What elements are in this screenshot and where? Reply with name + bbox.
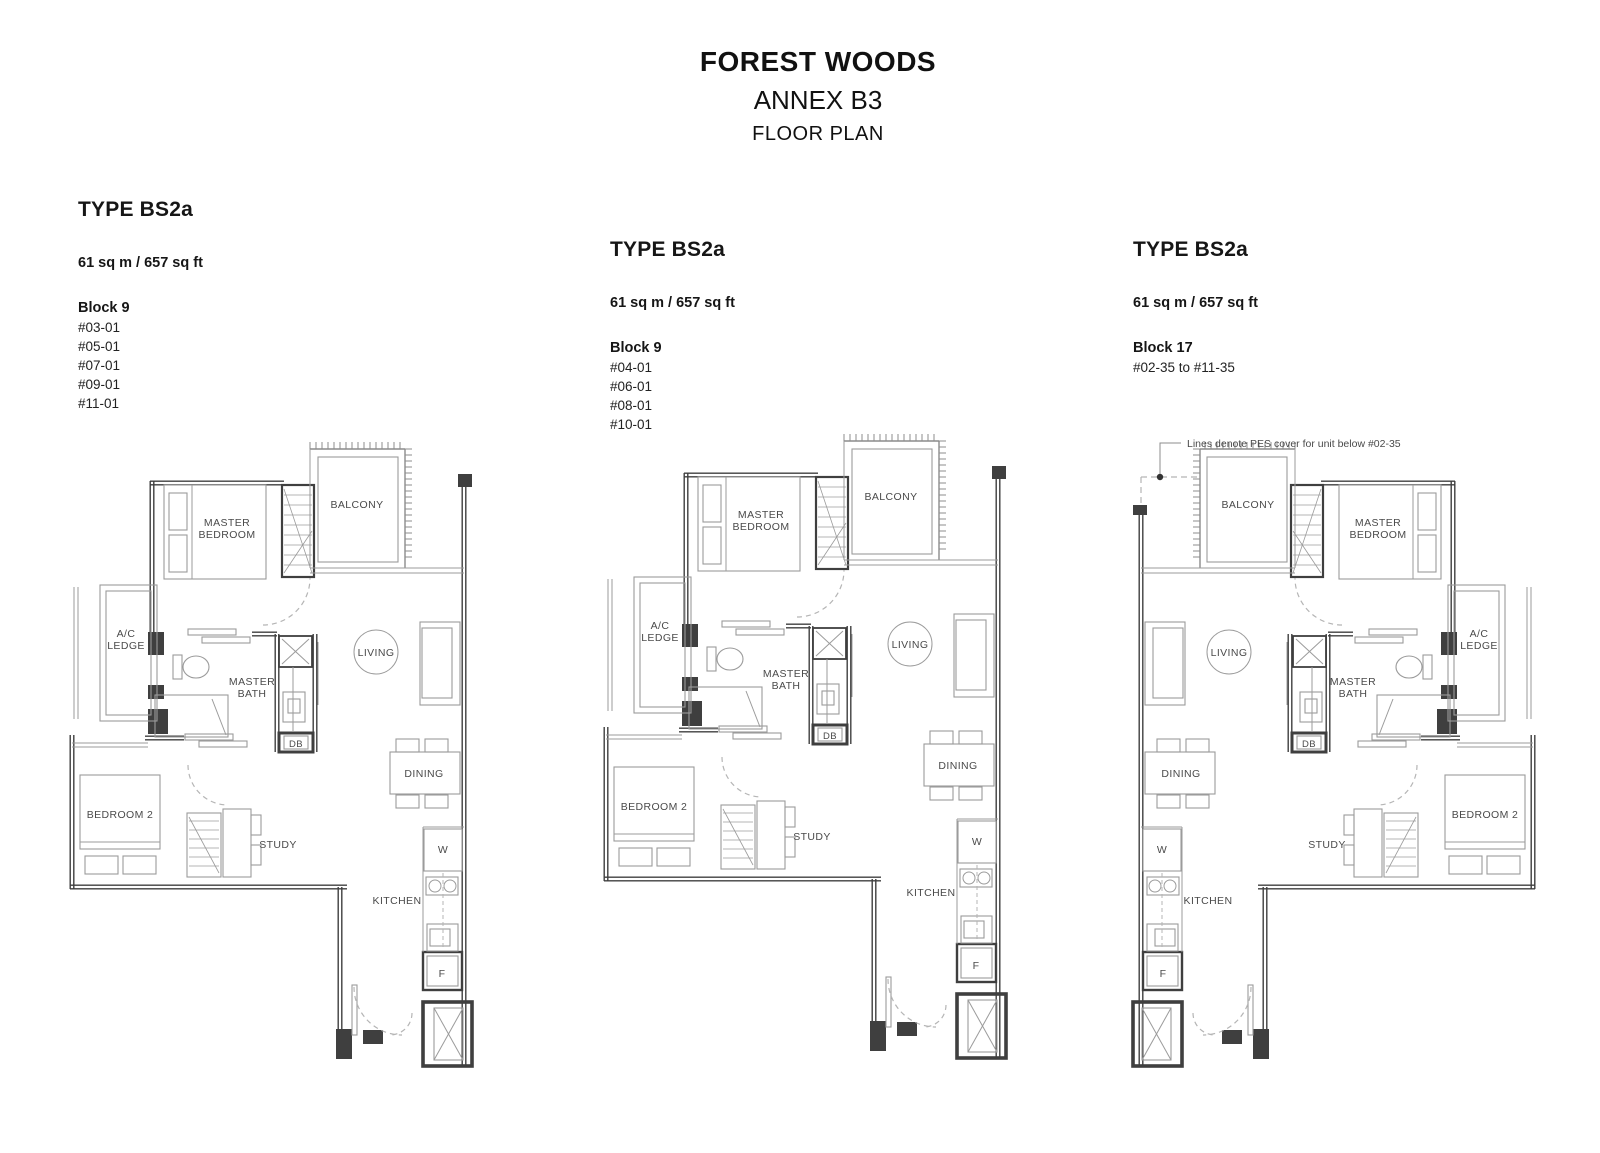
label-master_bath: MASTER <box>763 668 809 680</box>
unit-area: 61 sq m / 657 sq ft <box>610 295 735 311</box>
shaft <box>957 994 1006 1058</box>
unit-block: Block 17 <box>1133 340 1193 356</box>
stack-number: #03-01 <box>78 318 120 337</box>
fixture <box>954 614 994 697</box>
unit-type: TYPE BS2a <box>610 238 725 262</box>
fixture <box>959 787 982 800</box>
fixture <box>733 733 781 739</box>
floor-plan-3: Lines denote PES cover for unit below #0… <box>1085 437 1545 1077</box>
wall-block <box>992 466 1006 479</box>
stack-number: #07-01 <box>78 356 120 375</box>
label-master_bath: MASTER <box>229 676 275 688</box>
fixture <box>964 921 984 938</box>
fixture <box>1358 741 1406 747</box>
unit-type: TYPE BS2a <box>1133 238 1248 262</box>
fixture <box>722 621 770 627</box>
fixture <box>169 493 187 530</box>
fixture <box>123 856 156 874</box>
fixture <box>396 739 419 752</box>
fixture <box>640 583 685 707</box>
fixture <box>1155 929 1175 946</box>
label-db: DB <box>1302 739 1316 750</box>
unit-block: Block 9 <box>610 340 662 356</box>
hatch <box>1293 531 1321 573</box>
label-master_bedroom: BEDROOM <box>732 521 789 533</box>
label-dining: DINING <box>938 760 977 772</box>
fixture <box>202 637 250 643</box>
hatch <box>284 531 312 573</box>
shaft <box>1133 1002 1182 1066</box>
hatch <box>818 523 846 565</box>
wall-block <box>1133 505 1147 515</box>
label-ac_ledge: A/C <box>1470 628 1489 640</box>
unit-info-1: TYPE BS2a 61 sq m / 657 sq ft Block 9 #0… <box>78 198 193 222</box>
label-ac_ledge: LEDGE <box>1460 640 1498 652</box>
unit-stack-list: #02-35 to #11-35 <box>1133 358 1235 377</box>
fixture <box>930 731 953 744</box>
stack-number: #04-01 <box>610 358 652 377</box>
plan-geometry <box>604 434 1006 1059</box>
pes-leader-line <box>1160 443 1181 474</box>
fixture <box>817 684 839 714</box>
fixture <box>1186 795 1209 808</box>
wall-block <box>682 677 698 691</box>
fixture <box>959 731 982 744</box>
label-washer: W <box>438 844 448 856</box>
label-study: STUDY <box>793 831 831 843</box>
toilet-bowl <box>1396 656 1422 678</box>
fixture <box>425 739 448 752</box>
label-master_bath: BATH <box>238 688 267 700</box>
stack-number: #02-35 to #11-35 <box>1133 358 1235 377</box>
fixture <box>430 929 450 946</box>
fixture <box>1157 795 1180 808</box>
fixture <box>703 485 721 522</box>
floor-plan-2: BALCONYLIVINGDININGBEDROOM 2STUDYKITCHEN… <box>594 429 1054 1069</box>
unit-area: 61 sq m / 657 sq ft <box>78 255 203 271</box>
fixture <box>1449 856 1482 874</box>
label-fridge: F <box>439 968 446 980</box>
label-fridge: F <box>1160 968 1167 980</box>
label-master_bath: MASTER <box>1330 676 1376 688</box>
wall-block <box>1222 1030 1242 1044</box>
door-swing <box>1377 765 1417 805</box>
fixture <box>960 869 992 887</box>
stack-number: #06-01 <box>610 377 652 396</box>
fixture <box>169 535 187 572</box>
fixture <box>1369 629 1417 635</box>
label-master_bedroom: MASTER <box>738 509 784 521</box>
fixture <box>619 848 652 866</box>
door-swing <box>924 1005 946 1027</box>
fixture <box>288 699 300 713</box>
fixture <box>1186 739 1209 752</box>
fixture <box>1418 535 1436 572</box>
door-swing <box>1295 578 1342 625</box>
pes-marker-dot <box>1157 474 1163 480</box>
wall-block <box>682 624 698 647</box>
fixture <box>422 628 452 698</box>
unit-info-3: TYPE BS2a 61 sq m / 657 sq ft Block 17 #… <box>1133 238 1248 262</box>
header: FOREST WOODS ANNEX B3 FLOOR PLAN <box>618 46 1018 146</box>
label-bedroom2: BEDROOM 2 <box>621 801 688 813</box>
hob-burner <box>978 872 990 884</box>
hatch <box>1293 489 1321 573</box>
label-dining: DINING <box>404 768 443 780</box>
fixture <box>1355 637 1403 643</box>
label-ac_ledge: A/C <box>651 620 670 632</box>
fixture <box>657 848 690 866</box>
fixture <box>420 622 460 705</box>
fixture <box>283 692 305 722</box>
door-swing <box>390 1013 412 1035</box>
fixture <box>703 527 721 564</box>
wall-block <box>1441 685 1457 699</box>
fixture <box>1147 877 1179 895</box>
label-balcony: BALCONY <box>1222 499 1275 511</box>
label-ac_ledge: LEDGE <box>107 640 145 652</box>
fixture-line <box>1379 699 1393 735</box>
label-db: DB <box>289 739 303 750</box>
door-swing <box>263 578 310 625</box>
unit-stack-list: #04-01#06-01#08-01#10-01 <box>610 358 652 434</box>
wall-block <box>458 474 472 487</box>
label-dining: DINING <box>1161 768 1200 780</box>
floor-plan-subtitle: FLOOR PLAN <box>618 123 1018 146</box>
hatch <box>284 489 312 573</box>
stack-number: #08-01 <box>610 396 652 415</box>
annex-title: ANNEX B3 <box>618 85 1018 116</box>
fixture <box>757 801 785 869</box>
fixture <box>1344 815 1354 835</box>
label-master_bath: BATH <box>1339 688 1368 700</box>
hob-burner <box>963 872 975 884</box>
door-swing <box>188 765 228 805</box>
toilet-tank <box>707 647 716 671</box>
label-master_bedroom: MASTER <box>1355 517 1401 529</box>
label-living: LIVING <box>892 639 929 651</box>
label-bedroom2: BEDROOM 2 <box>87 809 154 821</box>
label-master_bedroom: BEDROOM <box>1349 529 1406 541</box>
fixture <box>425 795 448 808</box>
stack-number: #09-01 <box>78 375 120 394</box>
fixture <box>85 856 118 874</box>
door-swing <box>1203 987 1251 1035</box>
fixture <box>251 815 261 835</box>
fixture <box>1145 622 1185 705</box>
toilet-tank <box>173 655 182 679</box>
hatch <box>723 809 753 865</box>
hatch <box>189 817 219 873</box>
fixture <box>1157 739 1180 752</box>
fixture <box>1300 692 1322 722</box>
fixture <box>426 877 458 895</box>
fixture <box>1418 493 1436 530</box>
shaft <box>423 1002 472 1066</box>
fixture <box>822 691 834 705</box>
wall-block <box>1253 1029 1269 1059</box>
label-master_bedroom: MASTER <box>204 517 250 529</box>
unit-stack-list: #03-01#05-01#07-01#09-01#11-01 <box>78 318 120 413</box>
fixture <box>1305 699 1317 713</box>
floor-plan-page: FOREST WOODS ANNEX B3 FLOOR PLAN TYPE BS… <box>0 0 1600 1153</box>
fixture <box>1153 628 1183 698</box>
label-living: LIVING <box>1211 647 1248 659</box>
unit-block: Block 9 <box>78 300 130 316</box>
fixture-line <box>746 691 760 727</box>
project-title: FOREST WOODS <box>618 46 1018 78</box>
wall-block <box>870 1021 886 1051</box>
wall-block <box>363 1030 383 1044</box>
pes-annotation: Lines denote PES cover for unit below #0… <box>1187 438 1401 450</box>
fixture <box>1487 856 1520 874</box>
fixture <box>886 977 891 1027</box>
label-kitchen: KITCHEN <box>907 887 956 899</box>
label-washer: W <box>972 836 982 848</box>
label-master_bedroom: BEDROOM <box>198 529 255 541</box>
door-swing <box>797 570 844 617</box>
wall-block <box>336 1029 352 1059</box>
label-fridge: F <box>973 960 980 972</box>
fixture <box>1454 591 1499 715</box>
label-living: LIVING <box>358 647 395 659</box>
hatch <box>818 481 846 565</box>
label-washer: W <box>1157 844 1167 856</box>
stack-number: #05-01 <box>78 337 120 356</box>
fixture <box>785 807 795 827</box>
fixture <box>930 787 953 800</box>
toilet-tank <box>1423 655 1432 679</box>
label-ac_ledge: LEDGE <box>641 632 679 644</box>
fixture <box>1248 985 1253 1035</box>
wall-block <box>1441 632 1457 655</box>
fixture <box>352 985 357 1035</box>
stack-number: #11-01 <box>78 394 120 413</box>
hob-burner <box>1164 880 1176 892</box>
hob-burner <box>1149 880 1161 892</box>
door-swing <box>354 987 402 1035</box>
label-study: STUDY <box>1308 839 1346 851</box>
fixture <box>199 741 247 747</box>
door-swing <box>722 757 762 797</box>
toilet-bowl <box>183 656 209 678</box>
label-ac_ledge: A/C <box>117 628 136 640</box>
floor-plan-1: BALCONYLIVINGDININGBEDROOM 2STUDYKITCHEN… <box>60 437 520 1077</box>
label-balcony: BALCONY <box>331 499 384 511</box>
door-swing <box>1193 1013 1215 1035</box>
hob-burner <box>444 880 456 892</box>
fixture <box>223 809 251 877</box>
fixture-line <box>212 699 226 735</box>
hob-burner <box>429 880 441 892</box>
fixture <box>956 620 986 690</box>
plan-geometry <box>1133 442 1535 1067</box>
fixture <box>736 629 784 635</box>
label-bedroom2: BEDROOM 2 <box>1452 809 1519 821</box>
toilet-bowl <box>717 648 743 670</box>
label-balcony: BALCONY <box>865 491 918 503</box>
hatch <box>1386 817 1416 873</box>
fixture <box>396 795 419 808</box>
fixture <box>106 591 151 715</box>
unit-area: 61 sq m / 657 sq ft <box>1133 295 1258 311</box>
unit-type: TYPE BS2a <box>78 198 193 222</box>
fixture <box>1354 809 1382 877</box>
wall-block <box>148 632 164 655</box>
label-kitchen: KITCHEN <box>1184 895 1233 907</box>
unit-info-2: TYPE BS2a 61 sq m / 657 sq ft Block 9 #0… <box>610 238 725 262</box>
label-study: STUDY <box>259 839 297 851</box>
label-db: DB <box>823 731 837 742</box>
plan-geometry <box>70 442 472 1067</box>
wall-block <box>897 1022 917 1036</box>
label-kitchen: KITCHEN <box>373 895 422 907</box>
door-swing <box>888 979 936 1027</box>
fixture <box>188 629 236 635</box>
wall-block <box>148 685 164 699</box>
label-master_bath: BATH <box>772 680 801 692</box>
